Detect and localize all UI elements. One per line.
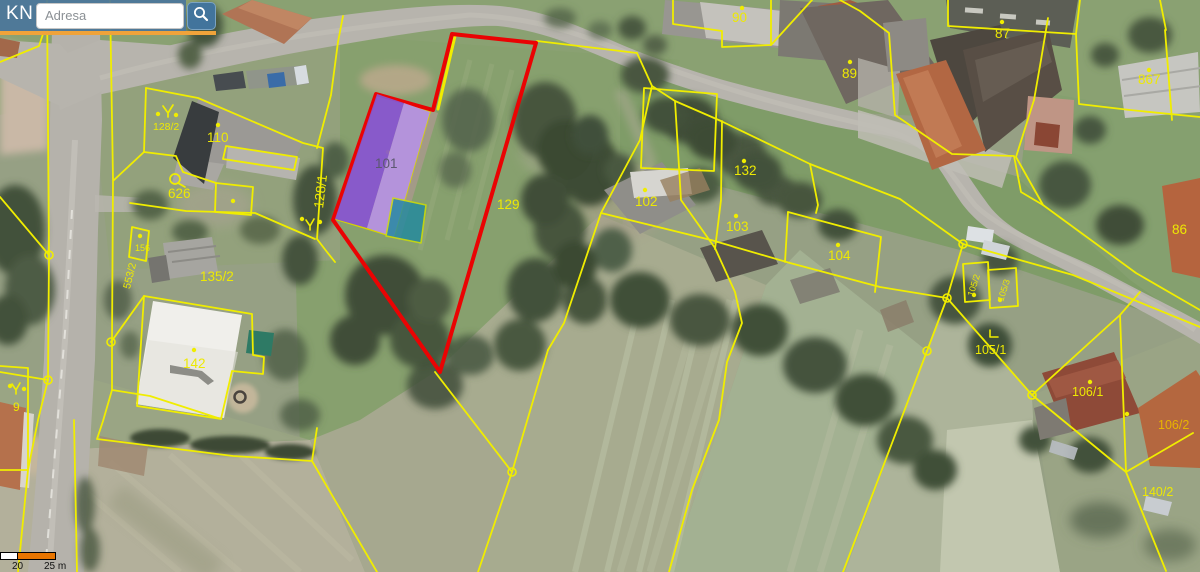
svg-text:102: 102 (635, 194, 658, 209)
svg-text:129: 129 (497, 197, 520, 212)
svg-text:105/1: 105/1 (975, 343, 1006, 357)
svg-text:132: 132 (734, 163, 757, 178)
svg-text:101: 101 (375, 156, 398, 171)
svg-text:103: 103 (726, 219, 749, 234)
svg-text:104: 104 (828, 248, 851, 263)
svg-text:128/2: 128/2 (153, 121, 179, 133)
svg-text:9: 9 (13, 400, 20, 414)
svg-text:87: 87 (995, 26, 1010, 41)
svg-text:867: 867 (1138, 72, 1161, 87)
svg-text:106/1: 106/1 (1072, 385, 1103, 399)
svg-text:89: 89 (842, 66, 857, 81)
svg-text:110: 110 (207, 130, 229, 145)
svg-text:626: 626 (168, 186, 191, 201)
svg-text:142: 142 (183, 356, 206, 371)
svg-text:90: 90 (732, 10, 747, 25)
svg-text:140/2: 140/2 (1142, 485, 1173, 499)
svg-text:156: 156 (135, 243, 150, 253)
svg-text:135/2: 135/2 (200, 269, 234, 284)
svg-text:86: 86 (1172, 222, 1187, 237)
svg-text:106/2: 106/2 (1158, 418, 1189, 432)
